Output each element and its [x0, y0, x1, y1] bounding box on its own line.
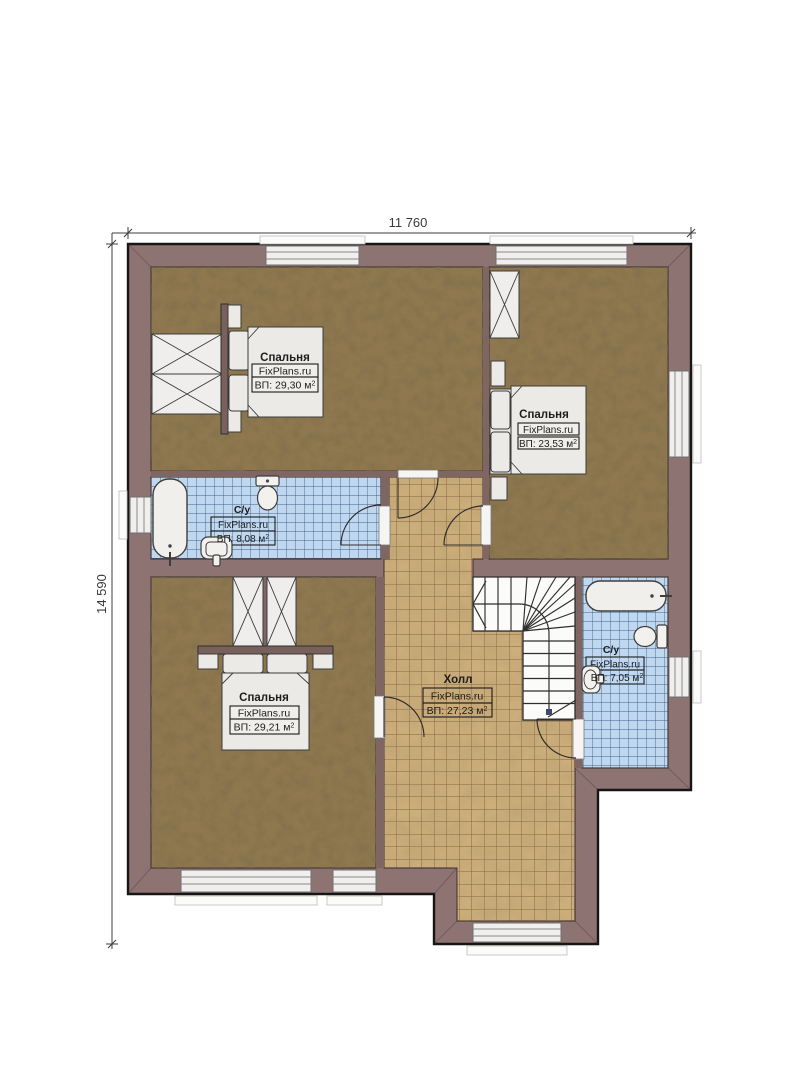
- svg-text:FixPlans.ru: FixPlans.ru: [238, 708, 291, 720]
- svg-text:11 760: 11 760: [389, 215, 428, 230]
- svg-text:FixPlans.ru: FixPlans.ru: [218, 520, 268, 531]
- svg-text:FixPlans.ru: FixPlans.ru: [523, 425, 573, 436]
- svg-text:С/у: С/у: [603, 644, 620, 656]
- svg-text:Спальня: Спальня: [519, 409, 569, 421]
- svg-text:ВП: 29,21 м2: ВП: 29,21 м2: [234, 722, 295, 734]
- svg-text:Спальня: Спальня: [239, 692, 289, 704]
- svg-text:ВП: 27,23 м2: ВП: 27,23 м2: [427, 705, 488, 717]
- svg-text:ВП: 7,05 м2: ВП: 7,05 м2: [591, 673, 644, 684]
- svg-text:Спальня: Спальня: [260, 352, 310, 364]
- svg-text:Холл: Холл: [444, 674, 473, 686]
- svg-text:ВП: 8,08 м2: ВП: 8,08 м2: [217, 534, 270, 545]
- svg-text:FixPlans.ru: FixPlans.ru: [431, 691, 484, 703]
- svg-text:ВП: 29,30 м2: ВП: 29,30 м2: [255, 380, 316, 392]
- svg-text:ВП: 23,53 м2: ВП: 23,53 м2: [519, 439, 577, 450]
- svg-text:14 590: 14 590: [94, 574, 109, 614]
- svg-text:FixPlans.ru: FixPlans.ru: [259, 366, 312, 378]
- svg-text:С/у: С/у: [234, 504, 251, 516]
